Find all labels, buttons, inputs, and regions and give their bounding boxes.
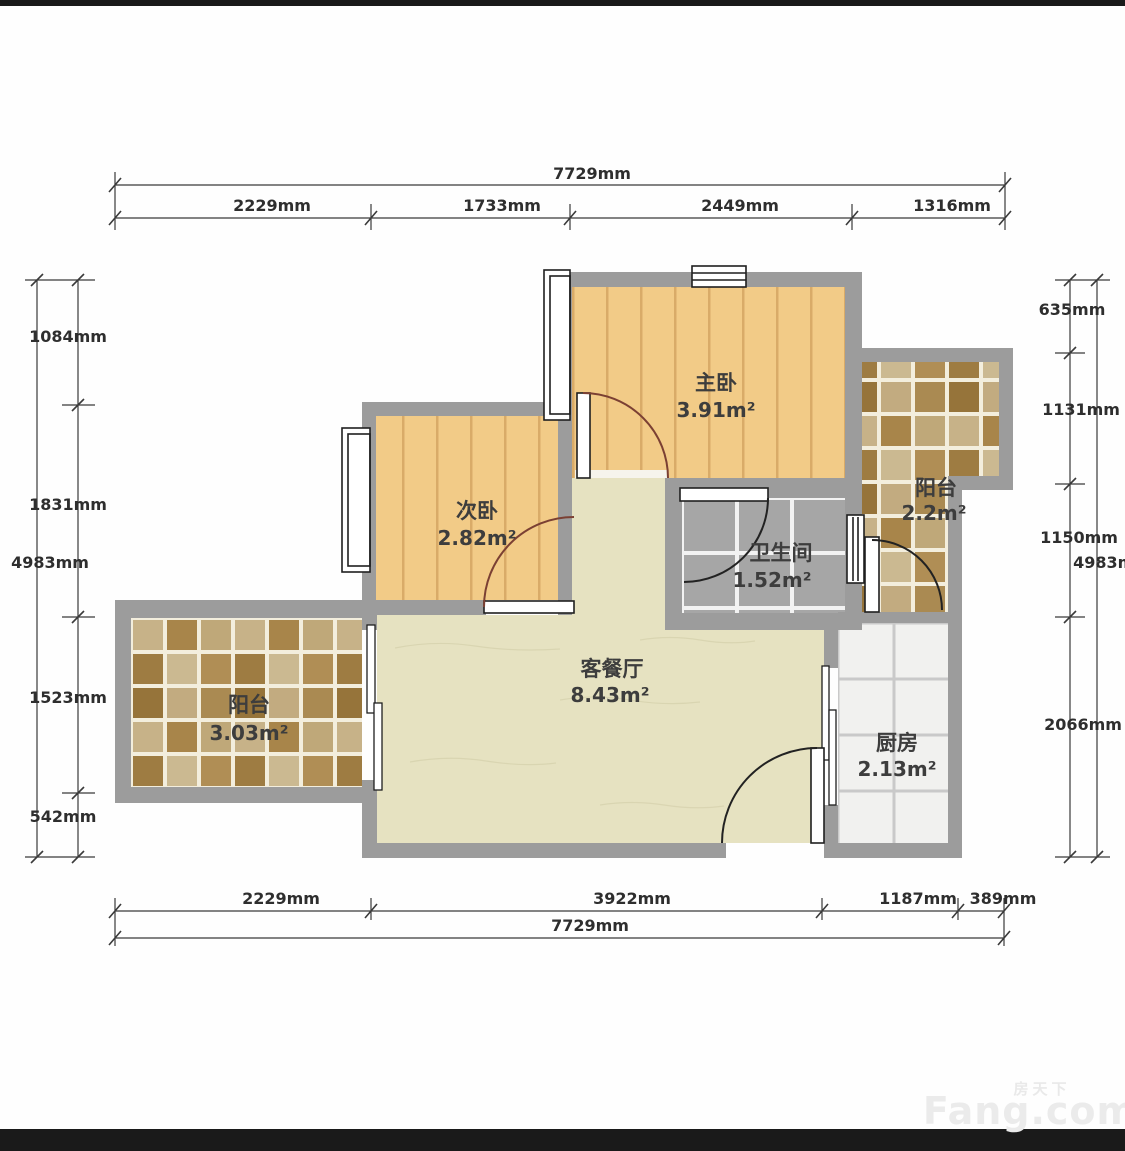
dim-right-seg-2: 1150mm: [1040, 528, 1118, 547]
dim-top-seg-0: 2229mm: [233, 196, 311, 215]
dim-top-seg-2: 2449mm: [701, 196, 779, 215]
living-dining-area: 8.43m²: [571, 683, 650, 707]
balcony-right-name: 阳台: [915, 476, 957, 500]
dim-left-total: 4983mm: [11, 553, 89, 572]
bathroom-balcony-window: [847, 515, 864, 583]
dim-bottom-seg-2: 1187mm: [879, 889, 957, 908]
kitchen-area: 2.13m²: [858, 757, 937, 781]
second-bedroom-window: [342, 428, 370, 572]
second-bedroom-name: 次卧: [456, 499, 498, 523]
dim-left-seg-1: 1831mm: [29, 495, 107, 514]
balcony-left-name: 阳台: [228, 693, 270, 717]
master-left-window: [544, 270, 570, 420]
kitchen-name: 厨房: [876, 731, 918, 755]
floorplan-canvas: 主卧 3.91m² 次卧 2.82m² 卫生间 1.52m² 客餐厅 8.43m…: [0, 0, 1125, 1151]
dim-left-seg-2: 1523mm: [29, 688, 107, 707]
living-dining-name: 客餐厅: [581, 657, 644, 681]
dim-right-seg-3: 2066mm: [1044, 715, 1122, 734]
master-bedroom-name: 主卧: [695, 371, 737, 395]
second-bedroom-area: 2.82m²: [438, 526, 517, 550]
master-bedroom-area: 3.91m²: [677, 398, 756, 422]
dim-right-total: 4983mm: [1073, 553, 1125, 572]
top-black-bar: [0, 0, 1125, 6]
bathroom-area: 1.52m²: [733, 568, 812, 592]
dim-bottom-seg-1: 3922mm: [593, 889, 671, 908]
bathroom-name: 卫生间: [750, 541, 813, 565]
master-top-window: [692, 266, 746, 287]
dim-bottom-total: 7729mm: [551, 916, 629, 935]
dim-top-seg-3: 1316mm: [913, 196, 991, 215]
dim-right-seg-0: 635mm: [1039, 300, 1106, 319]
dim-left-seg-3: 542mm: [30, 807, 97, 826]
dim-right-seg-1: 1131mm: [1042, 400, 1120, 419]
dim-top-seg-1: 1733mm: [463, 196, 541, 215]
watermark-logo: Fang.com: [923, 1089, 1125, 1133]
dim-bottom-seg-0: 2229mm: [242, 889, 320, 908]
floorplan-page: 主卧 3.91m² 次卧 2.82m² 卫生间 1.52m² 客餐厅 8.43m…: [0, 0, 1125, 1151]
dim-top-total: 7729mm: [553, 164, 631, 183]
balcony-left-area: 3.03m²: [210, 721, 289, 745]
balcony-right-area: 2.2m²: [901, 501, 966, 525]
dim-bottom-seg-3: 389mm: [970, 889, 1037, 908]
dim-left-seg-0: 1084mm: [29, 327, 107, 346]
